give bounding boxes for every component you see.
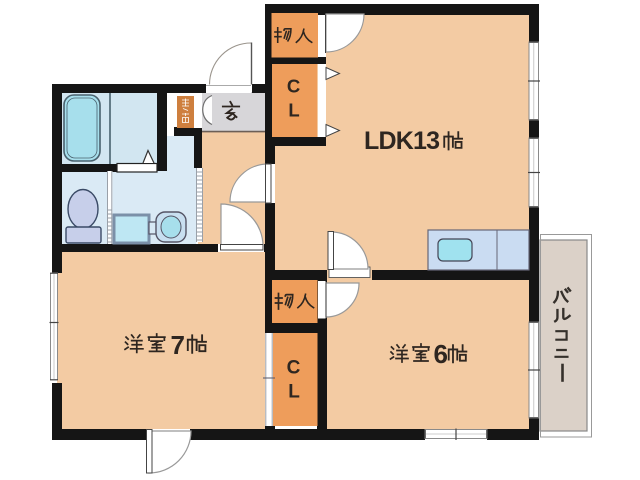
svg-text:LDK13: LDK13 bbox=[364, 127, 440, 155]
svg-text:L: L bbox=[288, 382, 300, 403]
svg-text:L: L bbox=[288, 100, 299, 121]
svg-text:6: 6 bbox=[434, 339, 448, 369]
svg-text:7: 7 bbox=[171, 330, 185, 360]
svg-text:C: C bbox=[287, 76, 300, 97]
svg-text:C: C bbox=[287, 358, 301, 379]
